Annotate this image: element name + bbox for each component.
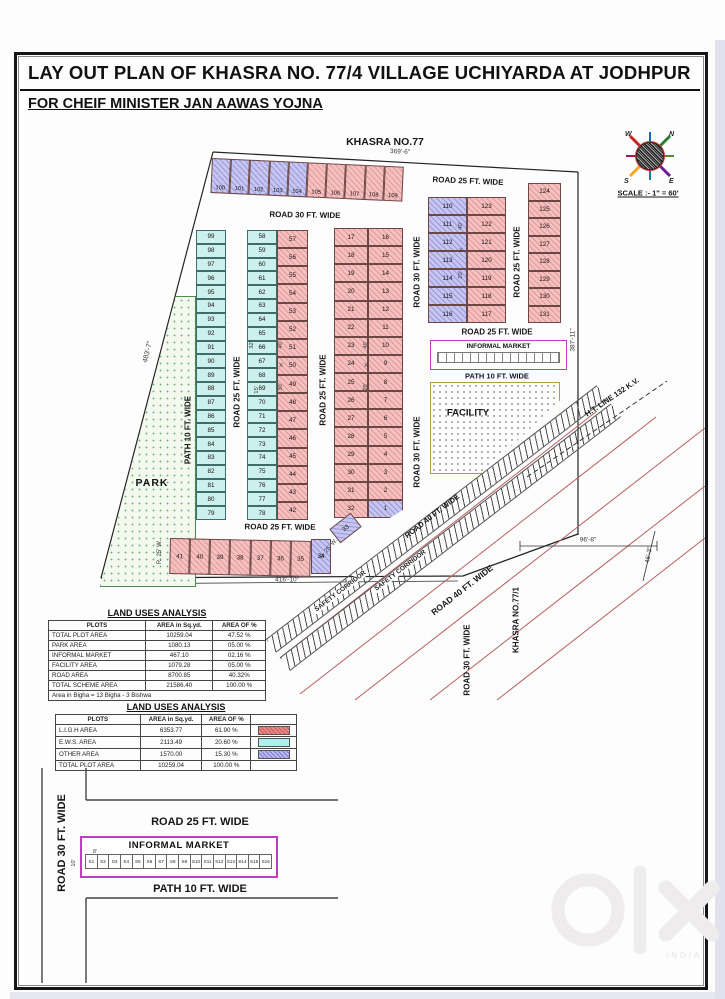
detail-road-25-label: ROAD 25 FT. WIDE (151, 816, 249, 828)
plot-cell: 128 (528, 253, 561, 271)
r25w-label: R. 25' W. (157, 540, 163, 564)
plot-cell: 82 (196, 465, 226, 479)
land-use-pct: 05.00 % (213, 661, 266, 671)
svg-text:INDIA: INDIA (666, 951, 702, 960)
plot-cell: 44 (277, 466, 308, 484)
land-use-name: L.I.G.H AREA (56, 725, 141, 737)
dim-40ft: 40' (363, 341, 369, 349)
market-stall-strip (437, 352, 560, 363)
land-use-pct: 100.00 % (202, 761, 251, 771)
plot-cell: 105 (306, 162, 327, 198)
plot-cell: 53 (277, 303, 308, 321)
plot-cell: 126 (528, 218, 561, 236)
plot-cell: 78 (247, 506, 277, 520)
plot-cell: 85 (196, 423, 226, 437)
plot-column-99-79: 9998979695949392919089888786858483828180… (196, 230, 226, 520)
table-header-row: PLOTS AREA in Sq.yd. AREA OF % (49, 621, 266, 631)
plot-column-124-131: 124125126127128129130131 (528, 183, 561, 323)
plot-cell: 30 (334, 464, 368, 482)
plot-column-58-78: 5859606162636465666768697071727374757677… (247, 230, 277, 520)
land-use-name: TOTAL PLOT AREA (49, 631, 146, 641)
table-row: TOTAL PLOT AREA 10259.04 47.52 % (49, 631, 266, 641)
plot-cell: 121 (467, 233, 506, 251)
plot-cell: 101 (230, 159, 251, 195)
table-note-row: Area in Bigha = 13 Bigha - 3 Bishwa (49, 691, 266, 701)
olx-logo-watermark: INDIA (540, 852, 720, 967)
plot-cell: 14 (368, 264, 403, 282)
table-row: TOTAL PLOT AREA 10259.04 100.00 % (56, 761, 297, 771)
plot-cell: 18 (334, 246, 368, 264)
plot-cell: 5 (368, 427, 403, 445)
plot-cell: 57 (277, 230, 308, 248)
bigha-note: Area in Bigha = 13 Bigha - 3 Bishwa (49, 691, 266, 701)
plot-cell: 79 (196, 506, 226, 520)
legend-swatch-empty (251, 761, 297, 771)
plot-column-123-117: 123122121120119118117 (467, 197, 506, 323)
plot-cell: 120 (467, 251, 506, 269)
plot-cell: 72 (247, 423, 277, 437)
dim-20ft: 20' (363, 383, 369, 391)
plot-cell: 74 (247, 451, 277, 465)
plot-cell: 9 (368, 355, 403, 373)
plot-cell: 84 (196, 437, 226, 451)
plot-cell: 63 (247, 299, 277, 313)
plot-cell: 104 (287, 161, 308, 197)
land-use-name: E.W.S. AREA (56, 737, 141, 749)
page-title: LAY OUT PLAN OF KHASRA NO. 77/4 VILLAGE … (20, 58, 700, 91)
plot-cell: 6 (368, 409, 403, 427)
land-use-area: 1080.13 (146, 641, 213, 651)
plot-column-16-2: 1615141312111098765432 (368, 228, 403, 500)
plot-cell: 19 (334, 264, 368, 282)
plot-cell: 116 (428, 305, 467, 323)
detail-dim-10ft: 10' (71, 859, 77, 866)
detail-stall-row: S1S2S3S4S5S6S7S8S9S10S11S12S13S14S15S16 (86, 854, 272, 869)
dim-30ft: 30' (278, 383, 284, 391)
plot-cell: 95 (196, 285, 226, 299)
road-30-vertical-lower-label: ROAD 30 FT. WIDE (413, 416, 422, 487)
plot-cell: 98 (196, 244, 226, 258)
plot-cell: 102 (249, 160, 270, 196)
land-use-area: 467.10 (146, 651, 213, 661)
table1-title: LAND USES ANALYSIS (48, 608, 266, 618)
detail-informal-market-box: INFORMAL MARKET S1S2S3S4S5S6S7S8S9S10S11… (80, 836, 278, 878)
col-header: PLOTS (56, 715, 141, 725)
plot-cell: 59 (247, 244, 277, 258)
land-use-pct: 40.32% (213, 671, 266, 681)
dim-20ft: 20' (458, 271, 464, 279)
plot-cell: 67 (247, 354, 277, 368)
plot-cell: 54 (277, 284, 308, 302)
plot-cell: 73 (247, 437, 277, 451)
plot-cell: 47 (277, 411, 308, 429)
land-use-area: 6353.77 (140, 725, 202, 737)
land-use-pct: 20.60 % (202, 737, 251, 749)
plot-cell: 8 (368, 373, 403, 391)
plot-cell: 31 (334, 482, 368, 500)
plot-cell: 42 (277, 502, 308, 520)
detail-path-10-label: PATH 10 FT. WIDE (153, 883, 247, 895)
plot-cell: 22 (334, 319, 368, 337)
plot-cell: 16 (368, 228, 403, 246)
plot-cell: 7 (368, 391, 403, 409)
plot-column-110-116: 110111112113114115116 (428, 197, 467, 323)
plot-cell: 93 (196, 313, 226, 327)
plot-cell: 38 (230, 539, 251, 575)
plot-cell: 61 (247, 271, 277, 285)
road-25-below-d-label: ROAD 25 FT. WIDE (461, 328, 532, 337)
plot-cell: 80 (196, 492, 226, 506)
plot-cell: 15 (368, 246, 403, 264)
plot-cell: 94 (196, 299, 226, 313)
table-row: PARK AREA 1080.13 05.00 % (49, 641, 266, 651)
plot-cell: 28 (334, 427, 368, 445)
plot-cell: 77 (247, 492, 277, 506)
table-row: ROAD AREA 8700.85 40.32% (49, 671, 266, 681)
plot-cell: 124 (528, 183, 561, 201)
plot-cell: 97 (196, 258, 226, 272)
plot-cell: 92 (196, 327, 226, 341)
road-25-vertical-ab-label: ROAD 25 FT. WIDE (233, 356, 242, 427)
path-10-vertical-label: PATH 10 FT. WIDE (184, 396, 193, 464)
plot-cell: 10 (368, 337, 403, 355)
plot-cell: 58 (247, 230, 277, 244)
plot-cell: 56 (277, 248, 308, 266)
plot-cell: 115 (428, 287, 467, 305)
plot-cell: 43 (277, 484, 308, 502)
land-use-name: OTHER AREA (56, 749, 141, 761)
plot-cell: 39 (210, 539, 231, 575)
land-use-area: 1570.00 (140, 749, 202, 761)
informal-market-area: INFORMAL MARKET (430, 340, 567, 370)
plot-cell: 62 (247, 285, 277, 299)
dim-right: 387'-11" (570, 328, 577, 351)
detail-dim-8ft: 8' (93, 849, 97, 855)
dim-x: X (364, 363, 368, 369)
plot-cell: 24 (334, 355, 368, 373)
plot-cell: 103 (268, 161, 289, 197)
plot-cell: 130 (528, 288, 561, 306)
plot-cell: 118 (467, 287, 506, 305)
road-30-vertical-upper-label: ROAD 30 FT. WIDE (413, 236, 422, 307)
facility-label: FACILITY (447, 408, 489, 419)
dim-x: X (279, 363, 283, 369)
plot-cell: 48 (277, 393, 308, 411)
plot-cell: 3 (368, 464, 403, 482)
dim-x: X (459, 248, 463, 254)
table-row: OTHER AREA 1570.00 15.30 % (56, 749, 297, 761)
plot-cell: 100 (210, 158, 231, 194)
compass-rose-icon: W N S E (618, 124, 682, 188)
svg-text:S: S (624, 178, 629, 185)
plot-cell: 131 (528, 306, 561, 324)
land-use-pct: 05.00 % (213, 641, 266, 651)
plot-cell: 89 (196, 368, 226, 382)
plot-cell: 91 (196, 341, 226, 355)
plot-cell: 21 (334, 301, 368, 319)
plot-cell: 119 (467, 269, 506, 287)
land-use-name: PARK AREA (49, 641, 146, 651)
plot-row-pink: 105106107108109 (306, 162, 403, 201)
plot-cell: 40 (189, 538, 210, 574)
table2-title: LAND USES ANALYSIS (55, 702, 297, 712)
informal-market-label: INFORMAL MARKET (431, 343, 566, 350)
dim-15ft: 15' (254, 386, 260, 394)
plot-cell: 70 (247, 396, 277, 410)
land-use-pct: 02.16 % (213, 651, 266, 661)
plot-column-17-32: 17181920212223242526272829303132 (334, 228, 368, 518)
table-row: E.W.S. AREA 2113.49 20.60 % (56, 737, 297, 749)
plot-cell: 123 (467, 197, 506, 215)
road-25-vertical-bc-label: ROAD 25 FT. WIDE (319, 354, 328, 425)
scale-label: SCALE :- 1" = 60' (618, 189, 679, 198)
col-header: AREA OF % (202, 715, 251, 725)
plot-column-57-42: 57565554535251504948474645444342 (277, 230, 308, 520)
plot-cell: 37 (250, 540, 271, 576)
road-30-top-label: ROAD 30 FT. WIDE (269, 210, 340, 220)
land-uses-table-2: LAND USES ANALYSIS PLOTS AREA in Sq.yd. … (55, 702, 297, 771)
plot-cell: 125 (528, 201, 561, 219)
detail-market-title: INFORMAL MARKET (82, 840, 276, 851)
plot-cell: 36 (270, 540, 291, 576)
layout-plan-sheet: LAY OUT PLAN OF KHASRA NO. 77/4 VILLAGE … (0, 0, 725, 999)
plot-cell: 68 (247, 368, 277, 382)
plot-cell: 20 (334, 282, 368, 300)
plot-row-41-35: 41403938373635 (169, 538, 311, 577)
plot-cell: 41 (169, 538, 190, 574)
land-use-pct: 15.30 % (202, 749, 251, 761)
detail-road-30-label: ROAD 30 FT. WIDE (56, 794, 68, 892)
khasra-77-label: KHASRA NO.77 (346, 136, 424, 148)
park-label: PARK (136, 477, 169, 489)
plot-cell: 75 (247, 465, 277, 479)
khasra-77-1-label: KHASRA NO.77/1 (512, 587, 521, 653)
land-use-area: 1079.28 (146, 661, 213, 671)
plot-cell: 110 (428, 197, 467, 215)
plot-cell: 96 (196, 271, 226, 285)
table-row: FACILITY AREA 1079.28 05.00 % (49, 661, 266, 671)
plot-cell: 13 (368, 282, 403, 300)
table-row: TOTAL SCHEME AREA 21586.40 100.00 % (49, 681, 266, 691)
plot-cell: 117 (467, 305, 506, 323)
land-use-name: FACILITY AREA (49, 661, 146, 671)
plot-cell: 81 (196, 479, 226, 493)
dim-96-8: 96'-8" (580, 537, 597, 544)
col-header: AREA in Sq.yd. (146, 621, 213, 631)
plot-cell: 12 (368, 301, 403, 319)
plot-cell: 83 (196, 451, 226, 465)
land-use-area: 10259.04 (146, 631, 213, 641)
land-use-area: 2113.49 (140, 737, 202, 749)
land-use-area: 21586.40 (146, 681, 213, 691)
land-use-name: TOTAL PLOT AREA (56, 761, 141, 771)
dim-40ft: 40' (458, 222, 464, 230)
plot-cell: 26 (334, 391, 368, 409)
plot-cell: 99 (196, 230, 226, 244)
plot-cell: 17 (334, 228, 368, 246)
plot-cell: 27 (334, 409, 368, 427)
plot-cell: 129 (528, 271, 561, 289)
road-30-bottomright-label: ROAD 30 FT. WIDE (463, 624, 472, 695)
plot-cell: 76 (247, 479, 277, 493)
plot-cell: 106 (325, 163, 346, 199)
legend-swatch-other (251, 749, 297, 761)
land-use-pct: 100.00 % (213, 681, 266, 691)
page-subtitle: FOR CHEIF MINISTER JAN AAWAS YOJNA (28, 94, 323, 114)
plot-cell: 60 (247, 258, 277, 272)
dim-bottom: 416'-10" (275, 577, 299, 584)
stall-cell: S16 (259, 854, 272, 869)
col-header: PLOTS (49, 621, 146, 631)
legend-swatch-ews (251, 737, 297, 749)
dim-32ft: 32' (249, 341, 255, 349)
land-use-area: 8700.85 (146, 671, 213, 681)
plot-cell: 64 (247, 313, 277, 327)
plot-cell: 71 (247, 410, 277, 424)
plot-cell: 87 (196, 396, 226, 410)
plot-cell: 90 (196, 354, 226, 368)
plot-cell: 11 (368, 319, 403, 337)
plot-cell: 35 (290, 541, 311, 577)
plot-cell: 2 (368, 482, 403, 500)
plot-cell: 55 (277, 266, 308, 284)
plot-cell: 122 (467, 215, 506, 233)
col-header: AREA in Sq.yd. (140, 715, 202, 725)
table-header-row: PLOTS AREA in Sq.yd. AREA OF % (56, 715, 297, 725)
legend-column-header (251, 715, 297, 725)
land-use-name: INFORMAL MARKET (49, 651, 146, 661)
path-10-label: PATH 10 FT. WIDE (465, 372, 529, 381)
land-use-area: 10259.04 (140, 761, 202, 771)
road-25-vertical-de-label: ROAD 25 FT. WIDE (513, 226, 522, 297)
land-use-name: ROAD AREA (49, 671, 146, 681)
land-use-pct: 61.90 % (202, 725, 251, 737)
dim-40ft: 40' (278, 341, 284, 349)
land-uses-table-1: LAND USES ANALYSIS PLOTS AREA in Sq.yd. … (48, 608, 266, 701)
svg-text:N: N (669, 131, 675, 138)
plot-cell: 65 (247, 327, 277, 341)
plot-cell: 86 (196, 410, 226, 424)
col-header: AREA OF % (213, 621, 266, 631)
plot-cell: 109 (383, 166, 404, 202)
land-use-pct: 47.52 % (213, 631, 266, 641)
plot-cell: 88 (196, 382, 226, 396)
plot-cell: 45 (277, 448, 308, 466)
plot-cell: 4 (368, 446, 403, 464)
plot-cell: 108 (364, 165, 385, 201)
road-25-above-bottom-row-label: ROAD 25 FT. WIDE (244, 522, 315, 532)
plot-row-blue: 100101102103104 (210, 158, 307, 197)
plot-cell: 52 (277, 321, 308, 339)
plot-cell: 46 (277, 429, 308, 447)
table-row: L.I.G.H AREA 6353.77 61.90 % (56, 725, 297, 737)
plot-cell: 107 (345, 164, 366, 200)
plot-cell: 29 (334, 446, 368, 464)
svg-text:E: E (669, 178, 674, 185)
dim-top: 369'-6" (390, 148, 410, 156)
plot-cell: 127 (528, 236, 561, 254)
table-row: INFORMAL MARKET 467.10 02.16 % (49, 651, 266, 661)
land-use-name: TOTAL SCHEME AREA (49, 681, 146, 691)
plot-cell: 69 (247, 382, 277, 396)
legend-swatch-ligh (251, 725, 297, 737)
